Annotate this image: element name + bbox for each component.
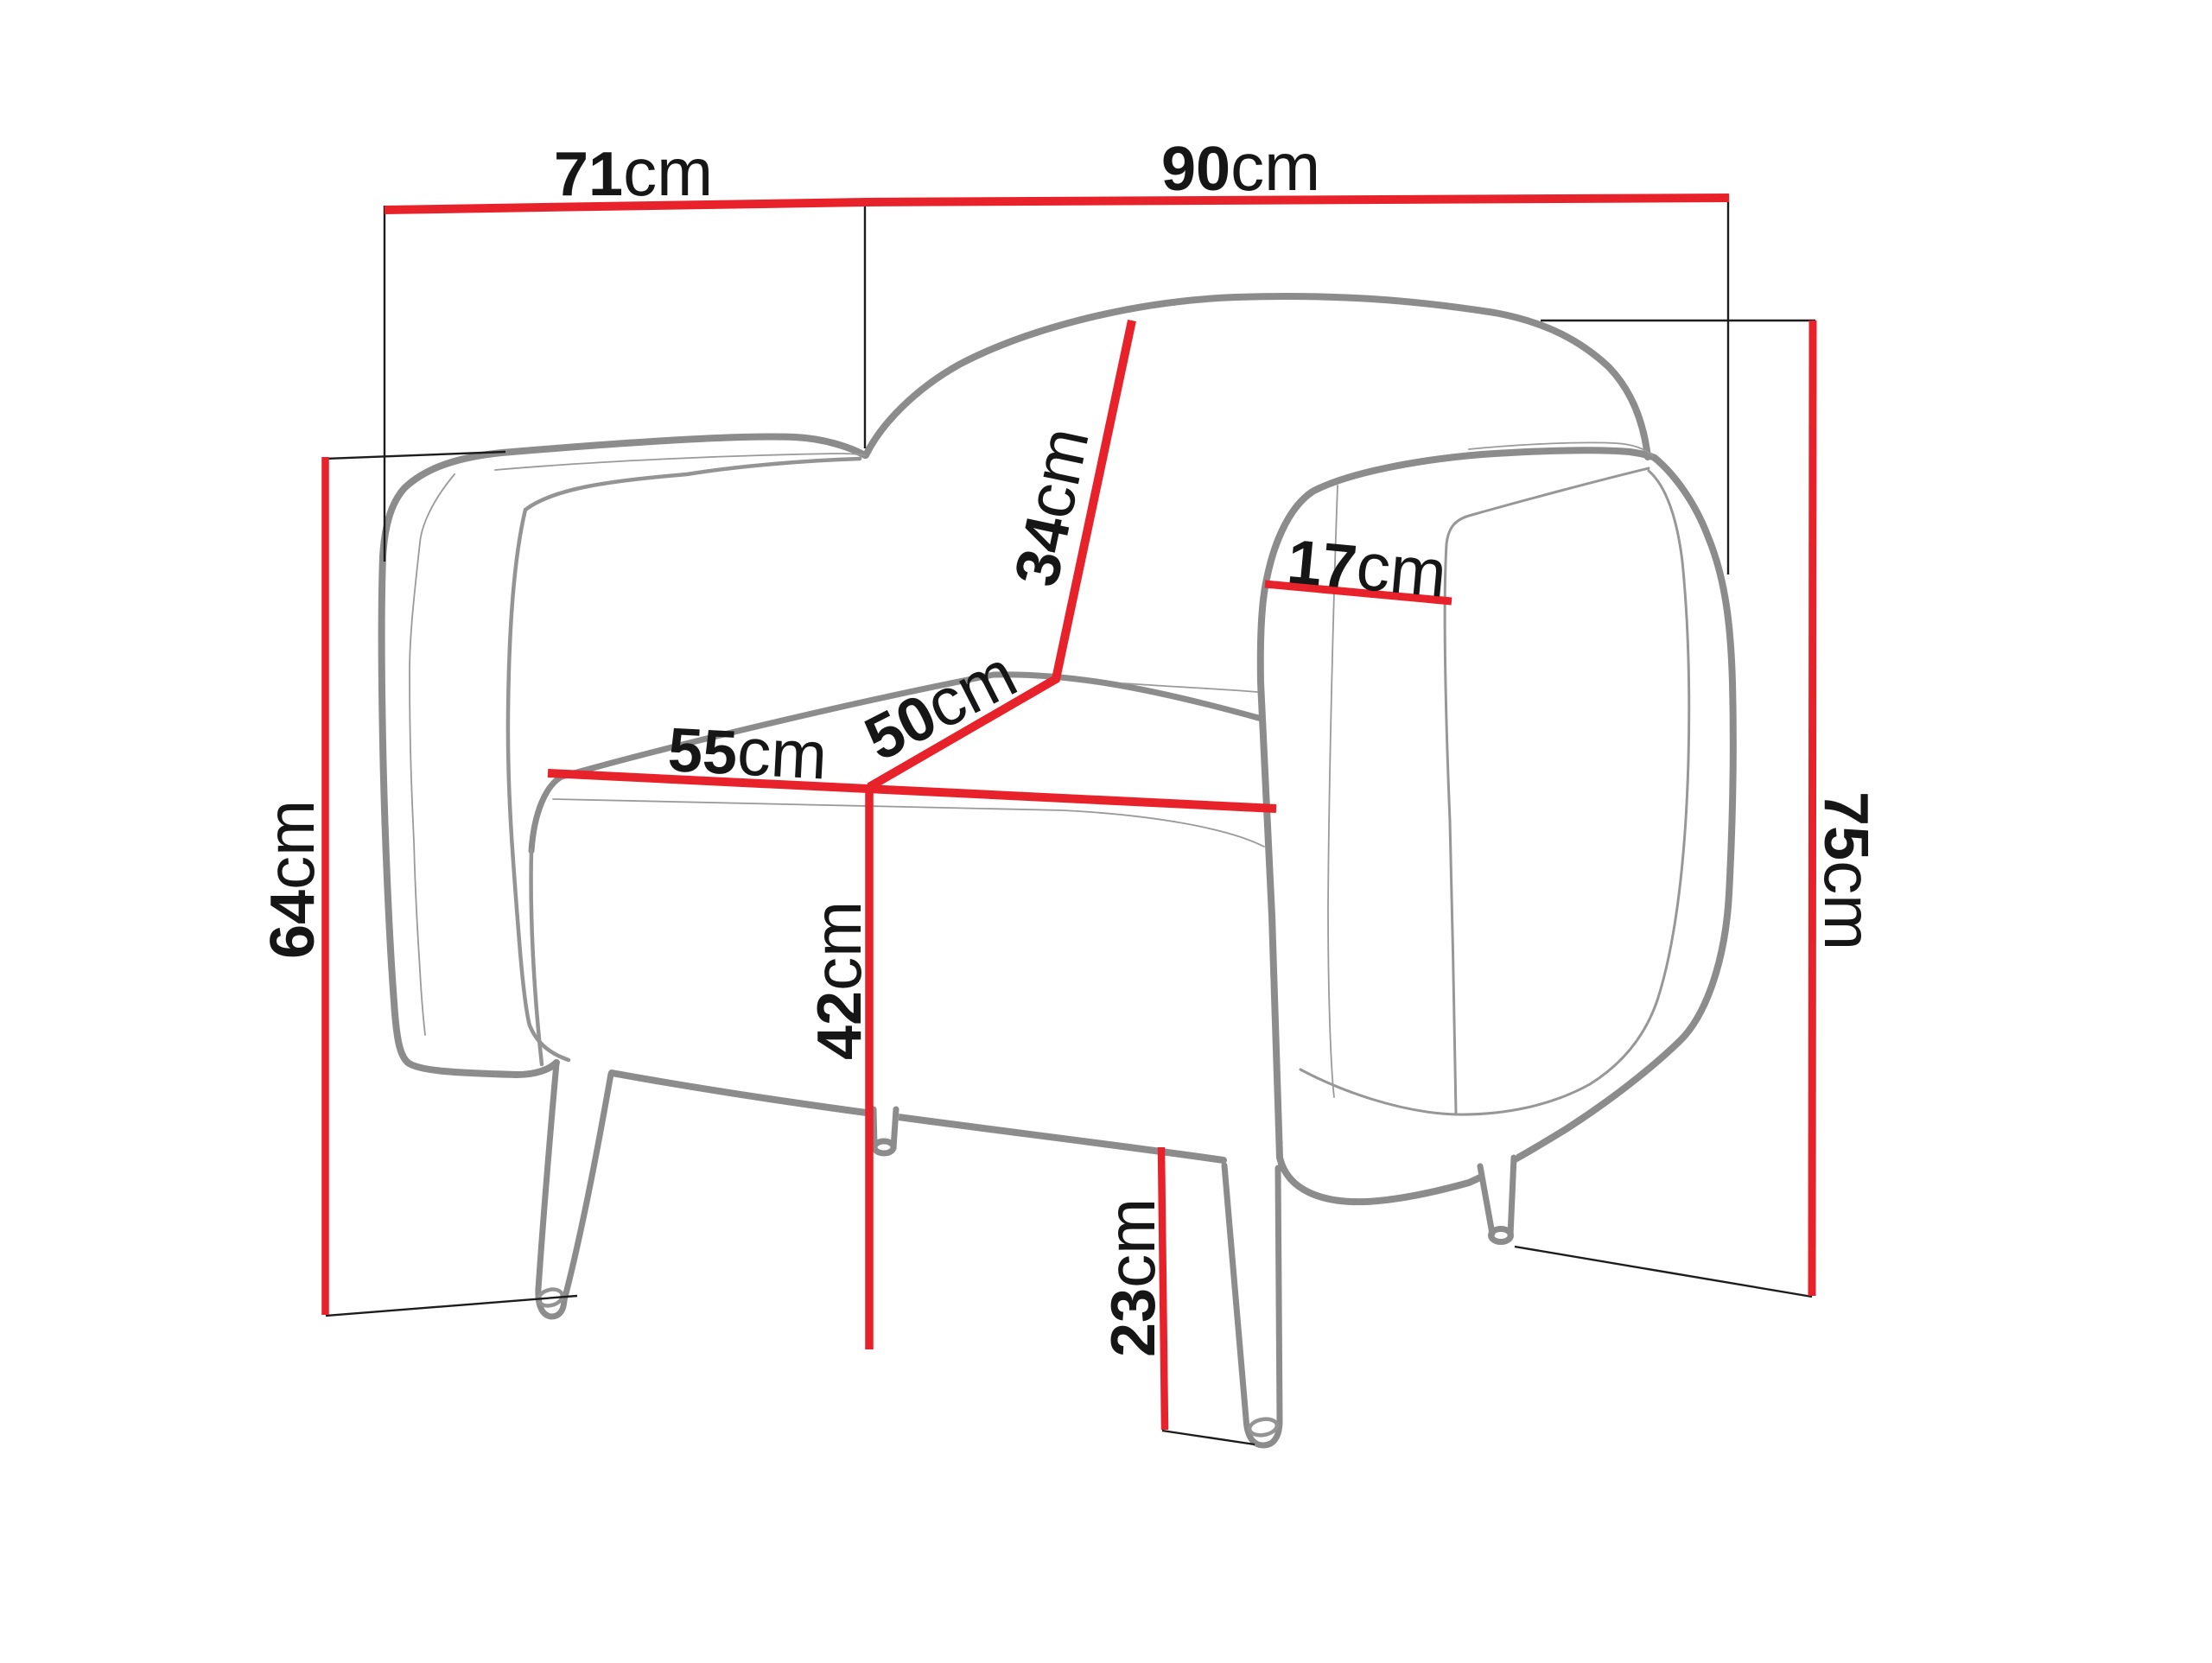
svg-text:17cm: 17cm	[1284, 521, 1449, 612]
svg-text:55cm: 55cm	[666, 709, 829, 794]
svg-text:71cm: 71cm	[554, 134, 713, 210]
svg-text:90cm: 90cm	[1161, 129, 1320, 205]
svg-text:64cm: 64cm	[252, 800, 328, 959]
svg-text:42cm: 42cm	[799, 901, 875, 1060]
svg-text:75cm: 75cm	[1810, 791, 1886, 950]
svg-text:23cm: 23cm	[1093, 1198, 1169, 1357]
